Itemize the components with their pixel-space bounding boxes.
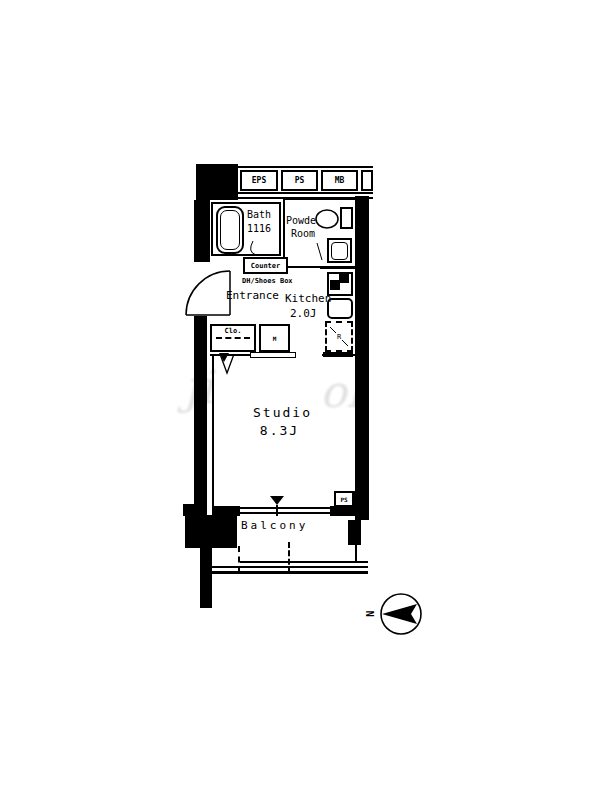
kitchen-size-label: 2.0J	[290, 308, 317, 321]
window-center-marker	[270, 496, 284, 505]
shaft-label-ps: PS	[295, 176, 305, 185]
closet-hanger-pipe	[216, 337, 250, 339]
shaft-box-mb: MB	[321, 170, 358, 191]
closet-label: Clo.	[225, 327, 242, 335]
compass-north-label: N	[363, 611, 375, 617]
wall-left-mid	[194, 316, 207, 352]
wall-left-upper	[194, 200, 210, 262]
shaft-label-eps: EPS	[252, 176, 266, 185]
refrigerator-space: R	[325, 321, 353, 352]
shaft-box-ps: PS	[281, 170, 318, 191]
meter-box: M	[259, 324, 290, 352]
toilet-tank-icon	[340, 207, 353, 229]
closet-door-mark	[220, 354, 234, 373]
balcony-label: Balcony	[241, 520, 308, 533]
wall-left-column	[200, 548, 212, 608]
bath-size-label: 1116	[247, 223, 271, 235]
entrance-door-leaf	[186, 271, 230, 315]
refrigerator-label: R	[337, 333, 341, 341]
entrance-label: Entrance	[226, 290, 279, 303]
wall-window-left-seg	[212, 506, 240, 516]
wall-right	[355, 196, 369, 520]
wall-corridor-line-1	[196, 192, 373, 194]
shaft-box-partial	[361, 170, 373, 191]
bathtub-inner-icon	[220, 210, 240, 250]
shaft-box-eps: EPS	[240, 170, 278, 191]
wall-window-right-seg	[330, 506, 356, 516]
pipe-shaft-box: PS	[334, 491, 355, 507]
floorplan-canvas: ji ol EPS PS MB Bath 1116 Powder Room Co…	[0, 0, 600, 800]
powder-room-label-1: Powder	[286, 215, 322, 227]
shaft-label-mb: MB	[335, 176, 345, 185]
bath-name-label: Bath	[247, 209, 271, 221]
balcony-divider-dash-2	[288, 542, 290, 573]
wall-top-left-block	[196, 164, 238, 200]
counter-label: Counter	[251, 262, 281, 270]
wall-right-bottom-block	[348, 520, 361, 545]
kitchen-label: Kitchen	[285, 293, 331, 306]
window-line-1	[240, 507, 330, 509]
balcony-divider-dash-1	[238, 546, 240, 573]
compass-circle-icon	[381, 594, 421, 634]
window-line-2	[240, 512, 330, 514]
window-center-mullion	[276, 505, 278, 516]
wall-balcony-left-block	[185, 515, 237, 548]
studio-size-label: 8.3J	[207, 424, 352, 439]
compass-arrow-icon	[382, 604, 417, 624]
wall-strip-top-line	[238, 166, 373, 168]
pipe-shaft-label: PS	[340, 496, 347, 503]
plan-annotations	[0, 0, 600, 800]
studio-label: Studio	[210, 406, 355, 421]
meter-box-label: M	[273, 335, 277, 342]
powder-room-label-2: Room	[291, 228, 315, 240]
shoes-box-label: DH/Shoes Box	[242, 277, 293, 285]
counter-box: Counter	[243, 257, 288, 274]
washbasin-inner-icon	[331, 242, 348, 260]
meter-box-ledge	[250, 352, 296, 358]
wall-kitchen-counter-end	[323, 352, 353, 357]
balcony-railing-1	[240, 561, 368, 563]
entrance-door-arc	[186, 271, 230, 315]
wall-left-lower	[194, 352, 207, 515]
